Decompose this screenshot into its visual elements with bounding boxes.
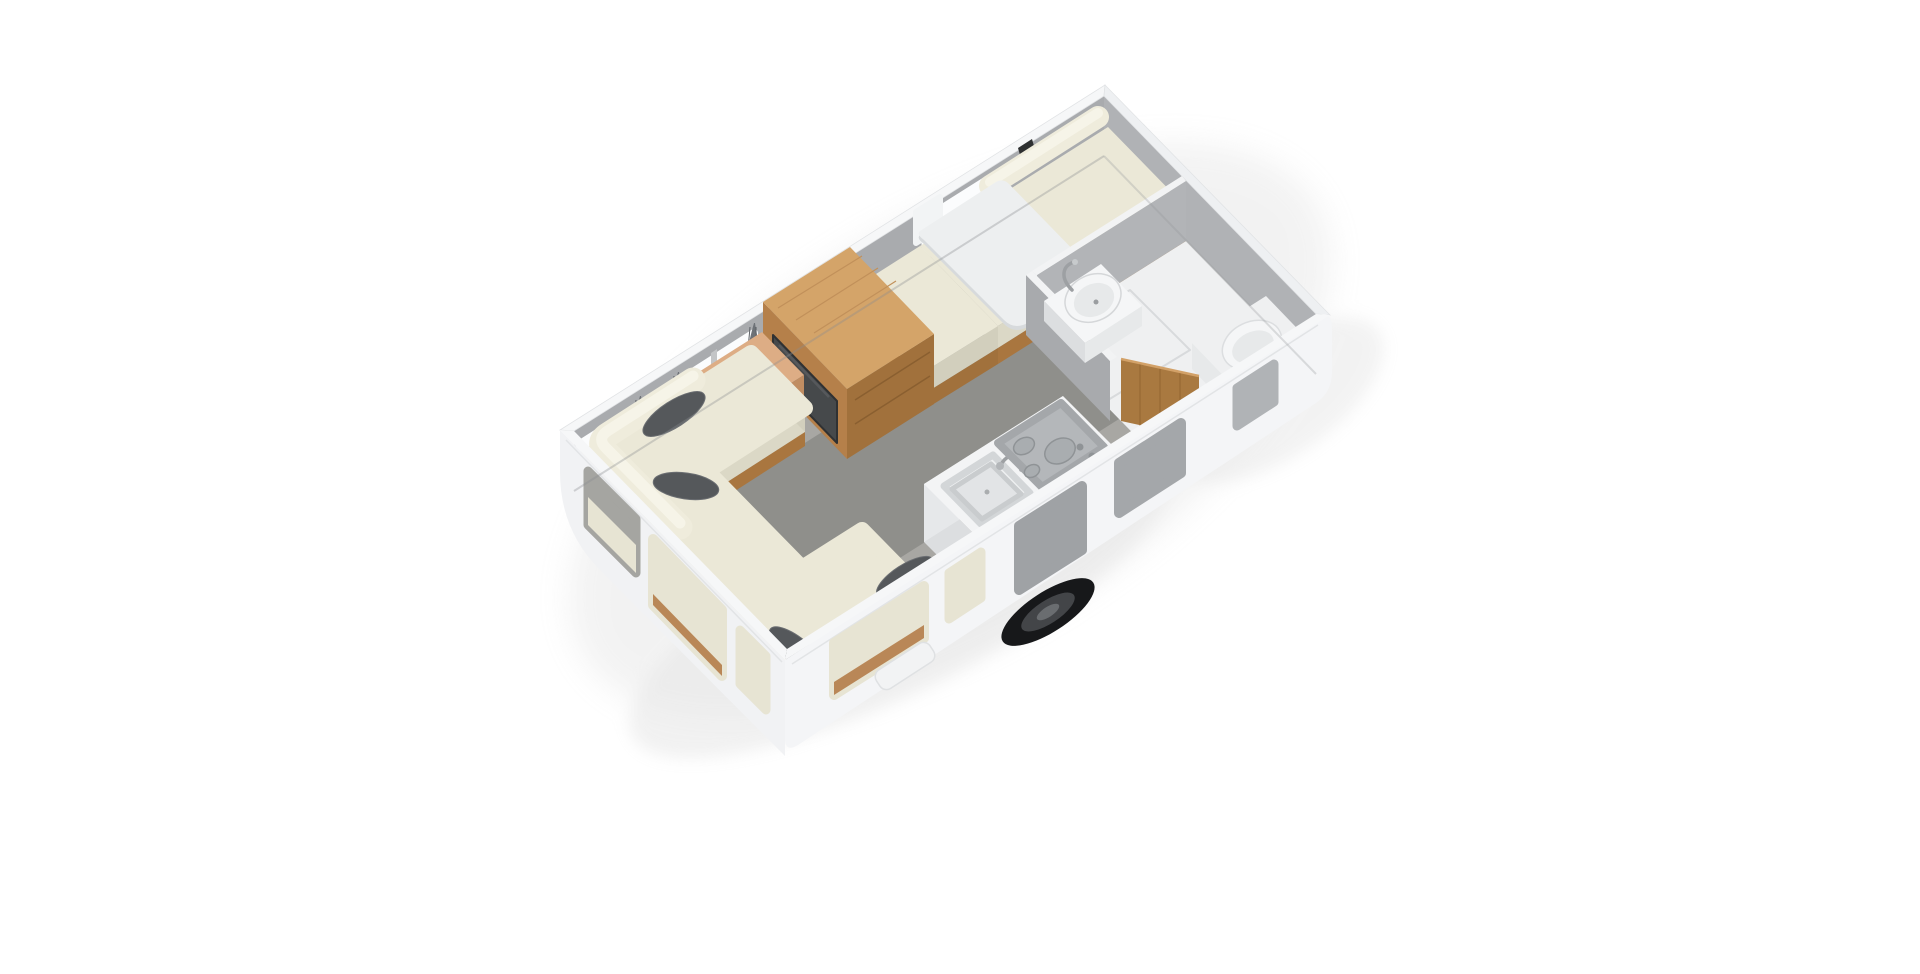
caravan-floorplan-illustration <box>0 0 1920 974</box>
render-canvas <box>0 0 1920 974</box>
sink-drain <box>985 490 990 495</box>
basin-faucet-tip <box>1072 259 1078 265</box>
basin-drain <box>1094 300 1099 305</box>
kitchen-faucet-base <box>996 462 1004 470</box>
hob-knob-1 <box>1077 444 1084 451</box>
